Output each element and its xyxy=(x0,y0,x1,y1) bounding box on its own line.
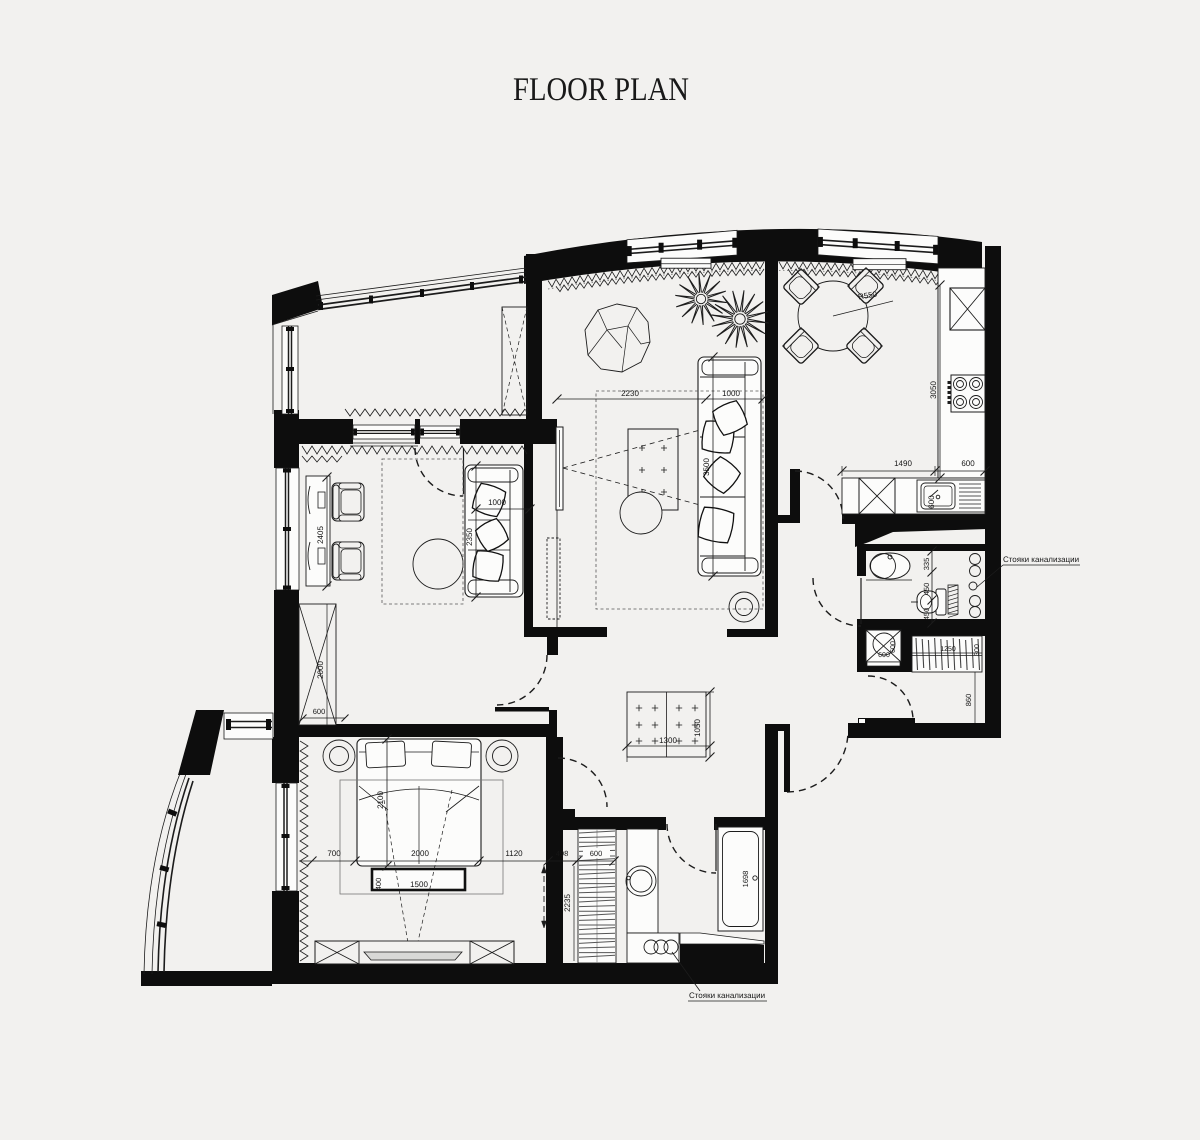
svg-text:1250: 1250 xyxy=(940,646,956,653)
svg-text:1490: 1490 xyxy=(894,459,912,468)
svg-text:600: 600 xyxy=(313,707,326,716)
svg-text:1300: 1300 xyxy=(659,736,677,745)
svg-text:2405: 2405 xyxy=(316,526,325,544)
svg-text:2235: 2235 xyxy=(563,894,572,912)
svg-text:450: 450 xyxy=(922,583,931,596)
svg-text:3050: 3050 xyxy=(929,381,938,399)
svg-text:FLOOR PLAN: FLOOR PLAN xyxy=(513,72,689,108)
svg-text:3500: 3500 xyxy=(702,458,711,476)
svg-text:600: 600 xyxy=(878,652,890,659)
svg-text:498: 498 xyxy=(556,849,569,858)
svg-text:Стояки канализации: Стояки канализации xyxy=(689,991,765,1000)
svg-text:700: 700 xyxy=(327,849,341,858)
svg-text:600: 600 xyxy=(590,849,603,858)
svg-text:335: 335 xyxy=(922,558,931,571)
svg-text:400: 400 xyxy=(374,878,383,891)
svg-text:600: 600 xyxy=(927,495,936,509)
svg-text:1120: 1120 xyxy=(505,849,523,858)
svg-text:1000: 1000 xyxy=(488,498,506,507)
svg-text:600: 600 xyxy=(961,459,975,468)
svg-text:300: 300 xyxy=(974,644,981,656)
svg-text:Стояки канализации: Стояки канализации xyxy=(1003,555,1079,564)
svg-text:2000: 2000 xyxy=(411,849,429,858)
svg-text:2000: 2000 xyxy=(316,661,325,679)
svg-text:450: 450 xyxy=(922,608,931,621)
svg-text:1000: 1000 xyxy=(722,389,740,398)
svg-text:600: 600 xyxy=(890,641,897,653)
svg-text:1500: 1500 xyxy=(410,880,428,889)
svg-text:2350: 2350 xyxy=(465,528,474,546)
svg-text:2100: 2100 xyxy=(376,791,385,809)
svg-text:2230: 2230 xyxy=(621,389,639,398)
svg-text:1698: 1698 xyxy=(741,871,750,888)
svg-text:860: 860 xyxy=(964,694,973,707)
svg-text:1050: 1050 xyxy=(693,719,702,737)
